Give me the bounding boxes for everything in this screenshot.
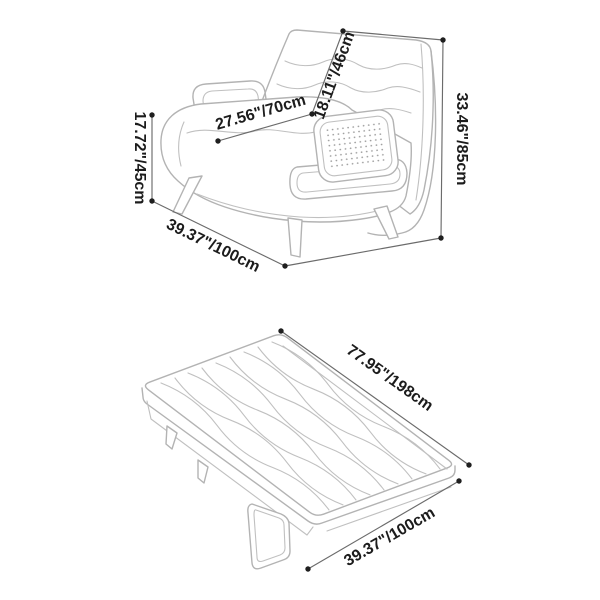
chair-seat-height-label: 17.72"/45cm (131, 112, 148, 205)
dimension-endpoint-dot (440, 37, 445, 42)
dimension-endpoint-dot (149, 198, 154, 203)
chair-leg-front-right (374, 206, 398, 239)
chair-depth-guide-line (285, 238, 441, 266)
bed-width-label: 39.37"/100cm (341, 504, 438, 570)
bed-leg-stub (198, 460, 208, 483)
chair-overall-width-label: 39.37"/100cm (163, 216, 262, 276)
dimension-endpoint-dot (282, 263, 287, 268)
armchair-line-art (161, 30, 436, 257)
dimension-endpoint-dot (438, 235, 443, 240)
dimension-endpoint-dot (215, 138, 220, 143)
dimension-endpoint-dot (305, 566, 310, 571)
product-dimension-diagram: 17.72"/45cm 27.56"/70cm 18.11"/46cm 33.4… (0, 0, 600, 600)
bed-mattress-top (145, 335, 451, 515)
dimension-endpoint-dot (278, 328, 283, 333)
dimension-endpoint-dot (456, 478, 461, 483)
chair-overall-height-line (441, 40, 443, 238)
rattan-cane-texture (326, 122, 387, 171)
diagram-canvas: 17.72"/45cm 27.56"/70cm 18.11"/46cm 33.4… (0, 0, 600, 600)
dimension-endpoint-dot (466, 462, 471, 467)
chair-leg-front-middle (288, 218, 302, 257)
bed-leg-stub (166, 426, 177, 449)
chair-overall-height-label: 33.46"/85cm (453, 93, 470, 186)
dimension-endpoint-dot (149, 112, 154, 117)
